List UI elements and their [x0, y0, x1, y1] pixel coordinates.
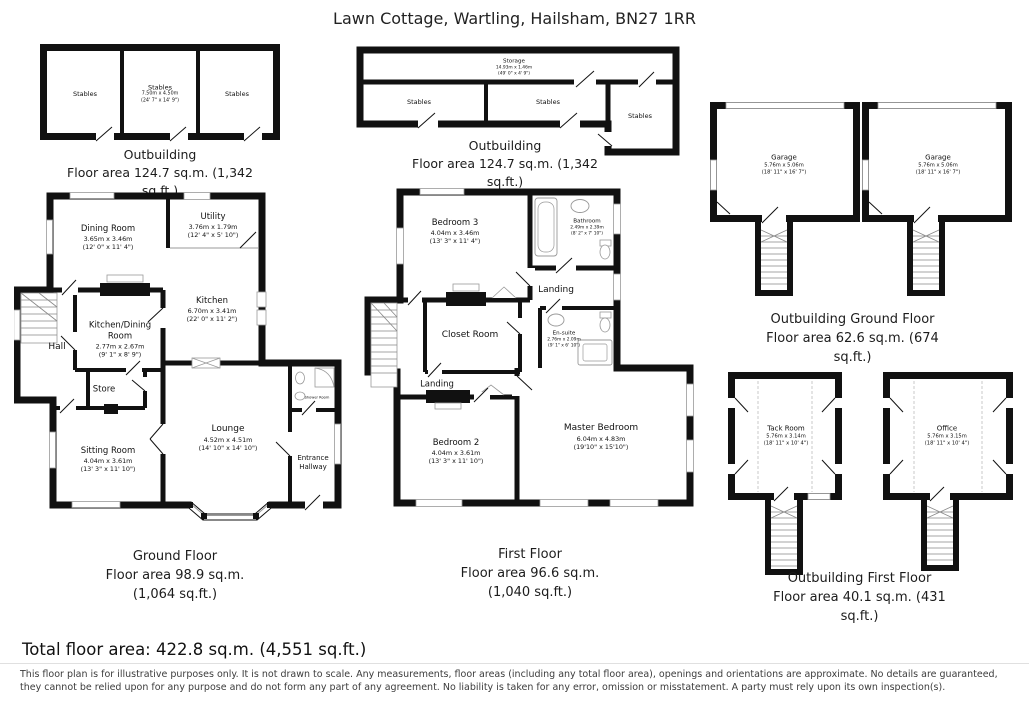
disclaimer-text: This floor plan is for illustrative purp… [20, 669, 1015, 694]
room-label-lounge: Lounge 4.52m x 4.51m (14' 10" x 14' 10") [199, 424, 258, 452]
floorplan-page: Lawn Cottage, Wartling, Hailsham, BN27 1… [0, 0, 1029, 720]
ground-floor-plan: Dining Room 3.65m x 3.46m (12' 0" x 11' … [14, 192, 350, 522]
hearth-icon [107, 275, 143, 282]
outbuilding-first-plan: Tack Room 5.76m x 3.14m (18' 11" x 10' 4… [728, 372, 1018, 582]
window-icon [711, 160, 717, 190]
room-label-garage-right: Garage 5.76m x 5.06m (18' 11" x 16' 7") [916, 154, 960, 177]
chimney-icon [446, 292, 486, 306]
first-floor-drawing [364, 188, 708, 518]
window-icon [726, 103, 844, 109]
outbuilding-first-drawing [728, 372, 1018, 582]
first-floor-caption: First Floor Floor area 96.6 sq.m. (1,040… [445, 546, 615, 603]
hearth-icon [435, 403, 461, 409]
window-icon [878, 103, 996, 109]
room-label-office: Office 5.76m x 3.15m (18' 11" x 10' 4") [925, 425, 969, 448]
outbuilding-first-caption: Outbuilding First Floor Floor area 40.1 … [752, 570, 967, 627]
room-label-stables-mid: Stables [536, 98, 560, 106]
stairs-icon [371, 303, 397, 387]
room-label-stables-right: Stables [628, 112, 652, 120]
page-title: Lawn Cottage, Wartling, Hailsham, BN27 1… [0, 9, 1029, 28]
room-label-closet-room: Closet Room [442, 330, 499, 342]
stairs-icon [913, 230, 939, 284]
divider [0, 663, 1029, 664]
room-label-shower-room: Shower Room [305, 396, 330, 401]
room-label-tack-room: Tack Room 5.76m x 3.14m (18' 11" x 10' 4… [764, 425, 808, 448]
room-label-stables-mid: Stables 7.50m x 4.50m (24' 7" x 14' 9") [141, 84, 179, 105]
room-label-stables-left: Stables [407, 98, 431, 106]
total-floor-area: Total floor area: 422.8 sq.m. (4,551 sq.… [22, 640, 366, 659]
room-label-landing-upper: Landing [538, 285, 574, 297]
stairs-icon [927, 506, 953, 560]
room-label-kitchen-dining: Kitchen/Dining Room 2.77m x 2.67m (9' 1"… [83, 321, 157, 360]
stairs-icon [21, 293, 57, 343]
ground-floor-caption: Ground Floor Floor area 98.9 sq.m. (1,06… [90, 548, 260, 605]
first-floor-plan: Bedroom 3 4.04m x 3.46m (13' 3" x 11' 4"… [364, 188, 708, 518]
room-label-bedroom2: Bedroom 2 4.04m x 3.61m (13' 3" x 11' 10… [429, 438, 484, 466]
chimney-icon [426, 390, 470, 403]
outbuilding-ground-plan: Garage 5.76m x 5.06m (18' 11" x 16' 7") … [710, 102, 1012, 298]
storage-outbuilding-caption: Outbuilding Floor area 124.7 sq.m. (1,34… [400, 137, 610, 191]
room-label-landing-lower: Landing [420, 379, 454, 390]
room-label-stables-left: Stables [73, 90, 97, 98]
room-label-kitchen: Kitchen 6.70m x 3.41m (22' 0" x 11' 2") [187, 296, 238, 324]
ground-floor-drawing [14, 192, 350, 522]
outbuilding-ground-caption: Outbuilding Ground Floor Floor area 62.6… [745, 311, 960, 368]
outbuilding-ground-drawing [710, 102, 1012, 298]
room-label-utility: Utility 3.76m x 1.79m (12' 4" x 5' 10") [188, 212, 239, 240]
room-label-dining-room: Dining Room 3.65m x 3.46m (12' 0" x 11' … [81, 224, 135, 252]
stables-outbuilding-plan: Stables Stables 7.50m x 4.50m (24' 7" x … [40, 44, 280, 144]
room-label-garage-left: Garage 5.76m x 5.06m (18' 11" x 16' 7") [762, 154, 806, 177]
window-icon [863, 160, 869, 190]
room-label-ensuite: En-suite 2.76m x 2.09m (9' 1" x 6' 10") [547, 331, 581, 350]
cooker-icon [192, 358, 220, 368]
room-label-stables-right: Stables [225, 90, 249, 98]
room-label-storage: Storage 14.93m x 1.46m (49' 0" x 4' 9") [496, 59, 532, 78]
room-label-master-bedroom: Master Bedroom 6.04m x 4.83m (19'10" x 1… [564, 423, 638, 451]
window-icon [808, 494, 830, 500]
stairs-icon [761, 230, 787, 284]
room-label-store: Store [93, 384, 115, 395]
hearth-icon [453, 284, 479, 291]
room-label-entrance-hallway: Entrance Hallway [287, 454, 339, 472]
room-label-bedroom3: Bedroom 3 4.04m x 3.46m (13' 3" x 11' 4"… [430, 218, 481, 246]
room-label-bathroom: Bathroom 2.49m x 2.39m (8' 2" x 7' 10") [570, 219, 604, 238]
room-label-hall: Hall [48, 342, 65, 354]
fireplace-icon [100, 283, 150, 296]
chimney-icon [104, 404, 118, 414]
room-label-sitting-room: Sitting Room 4.04m x 3.61m (13' 3" x 11'… [81, 446, 136, 474]
stairs-icon [771, 506, 797, 566]
